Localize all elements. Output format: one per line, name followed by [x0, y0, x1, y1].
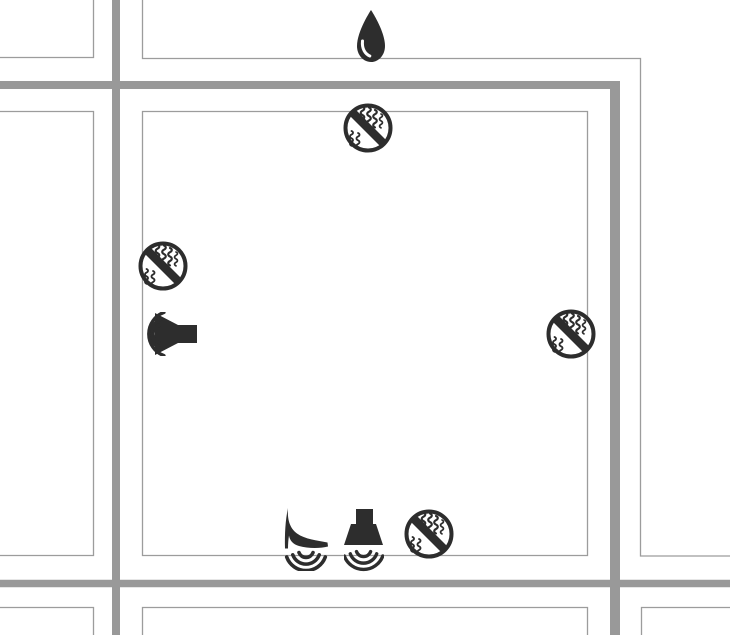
no-vibration-glyph — [346, 106, 391, 151]
block-bottom-right — [642, 608, 730, 635]
no-vibration-glyph — [141, 244, 186, 289]
block-bottom-center — [143, 608, 588, 635]
water-drop-shape — [357, 10, 385, 62]
no-vibration-icon-bottom[interactable]: no vibration zone (bottom edge of block) — [403, 508, 455, 560]
no-vibration-icon-left[interactable]: no vibration zone (left edge of block) — [137, 240, 189, 292]
no-vibration-icon-right[interactable]: no vibration zone (right edge of block) — [545, 308, 597, 360]
block-left-middle — [0, 112, 94, 556]
block-bottom-left — [0, 608, 94, 635]
high-heel-shape — [285, 508, 328, 549]
high-heel-vibration-waves — [287, 553, 326, 571]
no-vibration-glyph — [407, 512, 452, 557]
block-top-left — [0, 0, 94, 58]
hood-speaker-vibration-waves — [344, 552, 383, 570]
no-vibration-glyph — [549, 312, 594, 357]
block-central — [143, 112, 588, 556]
hood-speaker-neck — [356, 509, 373, 525]
hood-speaker-body — [344, 509, 383, 545]
loudspeaker-icon[interactable]: loudspeaker noise source — [132, 312, 198, 356]
no-vibration-icon-top[interactable]: no vibration zone (top edge of block) — [342, 102, 394, 154]
hood-speaker-hood — [344, 524, 383, 545]
map-canvas: water drop no vibration zone (top edge o… — [0, 0, 730, 635]
hood-speaker-vibration-icon[interactable]: downward speaker vibration source — [344, 509, 384, 575]
water-drop-icon[interactable]: water drop — [353, 9, 389, 63]
loudspeaker-box — [177, 325, 197, 343]
high-heel-vibration-icon[interactable]: high-heel footstep vibration source — [282, 507, 330, 571]
